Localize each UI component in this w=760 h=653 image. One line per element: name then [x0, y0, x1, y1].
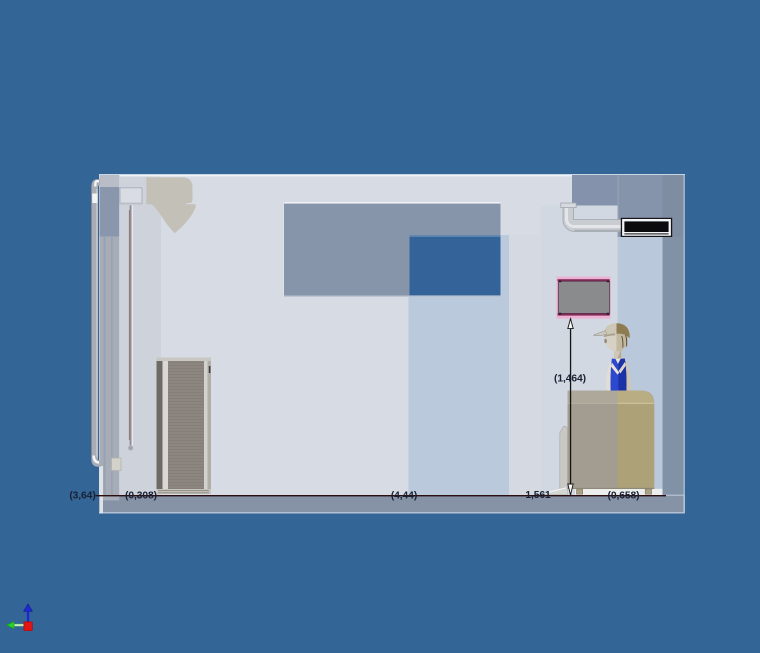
svg-text:(0,308): (0,308): [125, 491, 157, 502]
svg-text:(0,658): (0,658): [608, 491, 640, 502]
svg-text:(1,464): (1,464): [554, 374, 586, 385]
svg-text:1,561: 1,561: [525, 490, 551, 501]
svg-text:(4,44): (4,44): [391, 491, 417, 502]
svg-text:(3,64): (3,64): [69, 490, 95, 501]
